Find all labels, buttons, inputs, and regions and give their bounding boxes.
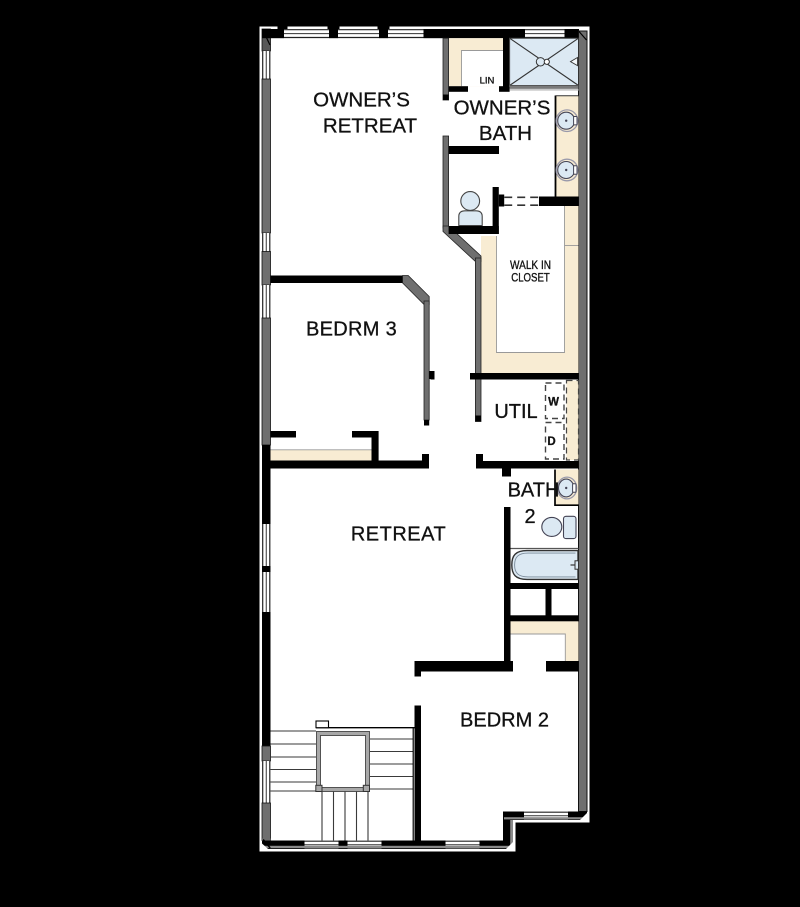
svg-text:BEDRM 3: BEDRM 3 bbox=[306, 319, 397, 341]
svg-text:BEDRM 2: BEDRM 2 bbox=[460, 710, 549, 732]
svg-text:OWNER’S: OWNER’S bbox=[454, 97, 551, 120]
svg-text:BATH: BATH bbox=[479, 122, 532, 145]
svg-text:OWNER’S: OWNER’S bbox=[313, 89, 410, 112]
svg-text:UTIL: UTIL bbox=[494, 401, 537, 423]
svg-text:WALK IN: WALK IN bbox=[510, 260, 551, 272]
svg-text:CLOSET: CLOSET bbox=[511, 273, 550, 285]
svg-text:2: 2 bbox=[524, 506, 535, 528]
svg-text:D: D bbox=[547, 436, 555, 448]
svg-text:W: W bbox=[548, 397, 559, 409]
svg-text:BATH: BATH bbox=[508, 480, 560, 502]
svg-text:RETREAT: RETREAT bbox=[323, 115, 418, 138]
svg-text:LIN: LIN bbox=[480, 75, 495, 86]
svg-text:RETREAT: RETREAT bbox=[351, 523, 446, 545]
